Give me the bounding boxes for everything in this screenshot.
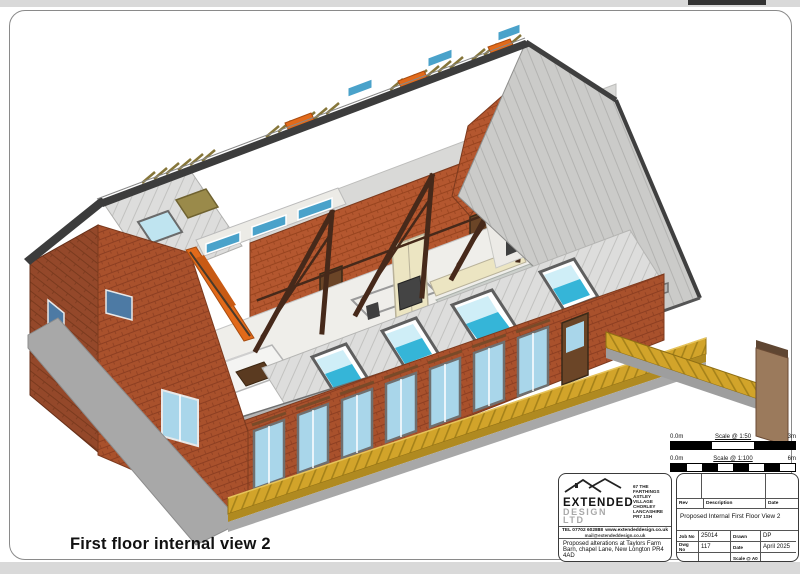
scale-bar-title: Scale @ 1:100: [670, 456, 796, 462]
drawn-value: DP: [761, 531, 796, 542]
rear-dormer-windows: [348, 24, 520, 97]
scale-bar-segments: [670, 441, 796, 450]
roofline-logo-icon: [563, 477, 625, 493]
dwg-no-label: Dwg No: [677, 542, 699, 553]
date-col-header: Date: [766, 499, 798, 508]
view-caption: First floor internal view 2: [70, 535, 271, 554]
empty-cell: [699, 553, 731, 562]
client-name: Mr & Mrs Sanderson: [559, 561, 671, 562]
job-no-label: Job No: [677, 531, 699, 542]
drawing-title-block: Rev Description Date Proposed Internal F…: [676, 473, 799, 562]
drawing-title: Proposed Internal First Floor View 2: [677, 509, 798, 531]
scale-value: [761, 553, 796, 562]
scale-bar-title: Scale @ 1:50: [670, 434, 796, 440]
empty-cell: [677, 553, 699, 562]
scale-label: Scale @ A0: [731, 553, 761, 562]
date-label: Date: [731, 542, 761, 553]
revision-table-header: Rev Description Date: [677, 499, 798, 509]
company-address: 67 THE FARTHINGS ASTLEY VILLAGE CHORLEY …: [633, 484, 667, 524]
project-description: Proposed alterations at Taylors Farm Bar…: [559, 538, 671, 561]
drawn-label: Drawn: [731, 531, 761, 542]
company-name-2: DESIGN LTD: [563, 508, 629, 524]
balcony-door: [562, 313, 588, 385]
revision-rows-empty: [677, 474, 798, 499]
scale-bar-1-50: 0.0m Scale @ 1:50 3m: [670, 432, 796, 450]
drawing-fields-grid: Job No 25014 Drawn DP Dwg No 117 Date Ap…: [677, 531, 798, 562]
date-value: April 2025: [761, 542, 796, 553]
job-no-value: 25014: [699, 531, 731, 542]
scale-bar-segments: [670, 463, 796, 472]
scale-bar-1-100: 0.0m Scale @ 1:100 6m: [670, 454, 796, 472]
dwg-no-value: 117: [699, 542, 731, 553]
company-title-block: EXTENDED DESIGN LTD 67 THE FARTHINGS AST…: [558, 473, 672, 562]
description-col-header: Description: [704, 499, 766, 508]
rev-col-header: Rev: [677, 499, 704, 508]
